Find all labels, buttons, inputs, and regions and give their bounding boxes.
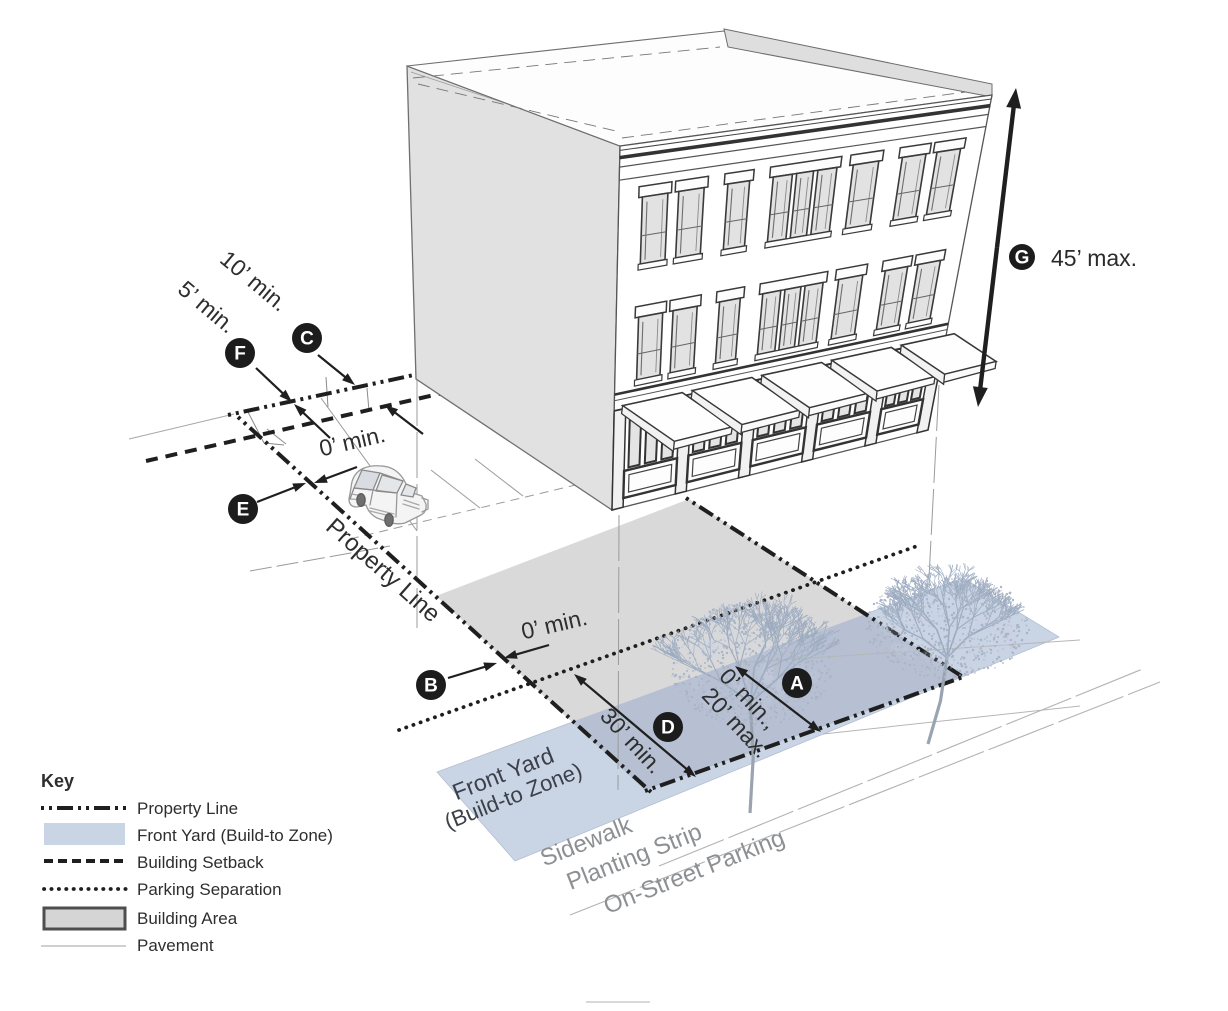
svg-text:Key: Key	[41, 771, 74, 791]
svg-text:45’ max.: 45’ max.	[1051, 245, 1137, 271]
svg-text:Parking Separation: Parking Separation	[137, 880, 282, 899]
svg-text:D: D	[661, 718, 675, 739]
svg-text:Front Yard (Build-to Zone): Front Yard (Build-to Zone)	[137, 826, 333, 845]
svg-text:C: C	[300, 329, 314, 350]
svg-text:F: F	[234, 344, 246, 365]
svg-text:Property Line: Property Line	[137, 799, 238, 818]
svg-text:G: G	[1015, 248, 1030, 269]
svg-text:Building Setback: Building Setback	[137, 853, 264, 872]
svg-text:B: B	[424, 676, 438, 697]
svg-text:Building Area: Building Area	[137, 909, 238, 928]
svg-text:E: E	[237, 500, 250, 521]
svg-text:A: A	[790, 674, 804, 695]
svg-text:Pavement: Pavement	[137, 936, 214, 955]
